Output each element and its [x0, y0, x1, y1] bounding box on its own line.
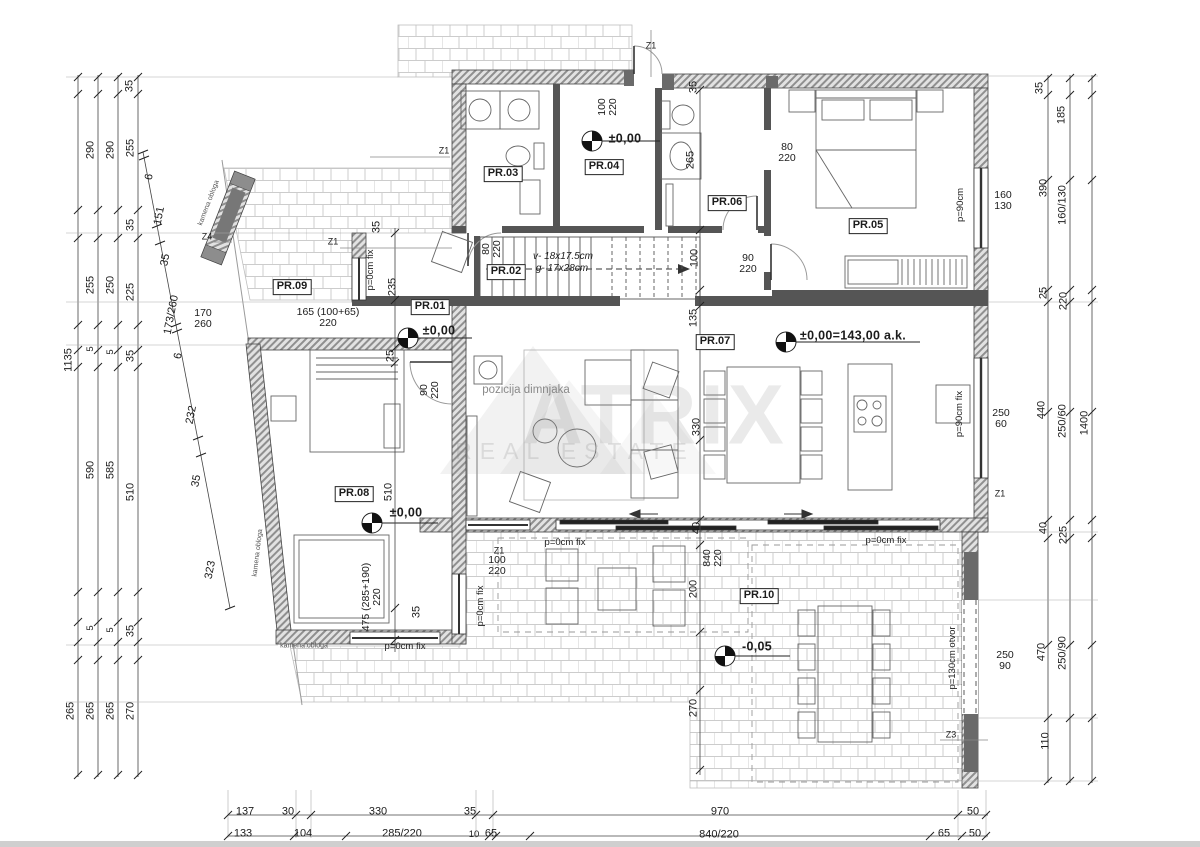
stairs-riser-note: v- 18x17.5cm [533, 252, 593, 262]
stone-cladding-note-2: kamena obloga [251, 529, 264, 577]
dim-left-590: 590 [85, 461, 96, 479]
dim-bottom-65b: 65 [938, 828, 950, 839]
dim-interior-40: 40 [691, 522, 702, 534]
dim-bottom-10: 10 [469, 830, 480, 840]
dim-stone-opening: 170 260 [194, 308, 212, 330]
window-note-west: p=0cm fix [366, 250, 376, 291]
elevation-pr04: ±0,00 [609, 133, 642, 146]
dim-left-35c: 35 [125, 350, 136, 362]
room-label-pr03: PR.03 [484, 166, 523, 182]
dim-diag-6a: 6 [144, 173, 156, 181]
dim-left-5b: 5 [86, 625, 96, 630]
dim-right-250-90: 250/90 [1057, 636, 1068, 670]
section-mark-z1-south: Z1 [494, 546, 505, 555]
dim-interior-35a: 35 [371, 221, 382, 233]
dim-bottom-35: 35 [464, 806, 476, 817]
dim-interior-35top: 35 [688, 81, 699, 93]
dim-terrace-window: 250 90 [996, 650, 1014, 672]
dim-right-110: 110 [1040, 732, 1051, 750]
elevation-pr07: ±0,00=143,00 a.k. [800, 330, 906, 343]
dim-interior-135: 135 [688, 309, 699, 327]
window-note-south-1: p=0cm fix [545, 538, 586, 548]
dim-diag-6b: 6 [173, 352, 185, 360]
dim-left-510: 510 [125, 483, 136, 501]
room-label-pr05: PR.05 [849, 218, 888, 234]
dim-diag-35a: 35 [159, 253, 173, 267]
dim-right-440: 440 [1036, 401, 1047, 419]
dim-left-5a: 5 [86, 346, 96, 351]
room-label-pr02: PR.02 [487, 264, 526, 280]
elevation-pr01: ±0,00 [423, 325, 456, 338]
dim-bottom-840-220: 840/220 [699, 829, 739, 840]
dim-interior-510: 510 [383, 483, 394, 501]
dim-right-390: 390 [1038, 179, 1049, 197]
stone-cladding-note-1: kamena obloga [197, 179, 221, 226]
dim-diag-323: 323 [204, 560, 219, 580]
dim-pr05-door: 80 220 [778, 142, 796, 164]
dim-interior-100: 100 [689, 249, 700, 267]
dim-right-470: 470 [1036, 643, 1047, 661]
room-label-pr07: PR.07 [696, 334, 735, 350]
elevation-pr08: ±0,00 [390, 507, 423, 520]
elevation-pr10: -0,05 [742, 641, 772, 654]
dim-right-225: 225 [1058, 526, 1069, 544]
floorplan-canvas: PR.01PR.02PR.03PR.04PR.05PR.06PR.07PR.08… [0, 0, 1200, 847]
section-mark-z1-pr03: Z1 [439, 146, 450, 155]
section-mark-z1-west: Z1 [328, 237, 339, 246]
window-note-south-2: p=0cm fix [866, 536, 907, 546]
dim-right-220: 220 [1058, 292, 1069, 310]
dim-left-250: 250 [105, 276, 116, 294]
dim-diag-35b: 35 [190, 474, 204, 488]
label-layer: PR.01PR.02PR.03PR.04PR.05PR.06PR.07PR.08… [0, 0, 1200, 847]
dim-left-265b: 265 [85, 702, 96, 720]
dim-pr05-window: 160 130 [994, 190, 1012, 212]
dim-left-225: 225 [125, 283, 136, 301]
dim-diag-232: 232 [185, 405, 200, 425]
dim-bottom-970: 970 [711, 806, 729, 817]
dim-right-160-130: 160/130 [1057, 185, 1068, 225]
window-note-pr05: p=90cm [956, 188, 966, 222]
dim-bottom-50b: 50 [969, 828, 981, 839]
dim-bottom-50a: 50 [967, 806, 979, 817]
section-mark-z1-east: Z1 [995, 489, 1006, 498]
dim-bottom-133: 133 [234, 828, 252, 839]
dim-left-290b: 290 [105, 141, 116, 159]
window-note-pr08-south: p=0cm fix [385, 642, 426, 652]
room-label-pr08: PR.08 [335, 486, 374, 502]
dim-left-5c: 5 [106, 349, 116, 354]
dim-bottom-30: 30 [282, 806, 294, 817]
dim-pr08-door: 90 220 [419, 381, 441, 399]
dim-left-35b: 35 [125, 219, 136, 231]
dim-interior-265: 265 [685, 151, 696, 169]
bottom-strip [0, 841, 1200, 847]
dim-left-265c: 265 [105, 702, 116, 720]
dim-right-35: 35 [1034, 82, 1045, 94]
dim-right-250-60: 250/60 [1057, 404, 1068, 438]
dim-left-35a: 35 [124, 80, 135, 92]
dim-right-25: 25 [1038, 287, 1049, 299]
dim-diag-173-260: 173/260 [163, 294, 182, 335]
dim-diag-151: 151 [153, 206, 168, 226]
window-note-pr07: p=90cm fix [955, 391, 965, 437]
dim-interior-200: 200 [688, 580, 699, 598]
dim-entry-door: 100 220 [597, 98, 619, 116]
room-label-pr01: PR.01 [411, 299, 450, 315]
dim-left-5d: 5 [106, 627, 116, 632]
dim-left-265a: 265 [65, 702, 76, 720]
dim-pr09-opening: 165 (100+65) 220 [297, 307, 360, 329]
dim-left-1135: 1135 [63, 348, 74, 372]
dim-sliding-opening: 840 220 [702, 549, 724, 567]
opening-note-terrace: p=130cm otvor [948, 626, 958, 689]
dim-pr08-window: 475 (285+190) 220 [361, 563, 383, 632]
dim-bottom-65a: 65 [485, 828, 497, 839]
window-note-pr08-east: p=0cm fix [476, 586, 486, 627]
room-label-pr10: PR.10 [740, 588, 779, 604]
dim-interior-35b: 35 [411, 606, 422, 618]
dim-pr07-window: 250 60 [992, 408, 1010, 430]
dim-pr10-window: 100 220 [488, 555, 506, 577]
dim-left-255b: 255 [125, 139, 136, 157]
room-label-pr06: PR.06 [708, 195, 747, 211]
dim-interior-25: 25 [385, 350, 396, 362]
section-mark-z4: Z4 [202, 232, 213, 241]
dim-corridor-door: 90 220 [739, 253, 757, 275]
dim-bottom-104: 104 [294, 828, 312, 839]
dim-bottom-330: 330 [369, 806, 387, 817]
dim-right-1400: 1400 [1079, 411, 1090, 435]
dim-left-585: 585 [105, 461, 116, 479]
dim-interior-270: 270 [688, 699, 699, 717]
dim-left-255a: 255 [85, 276, 96, 294]
dim-bottom-137: 137 [236, 806, 254, 817]
dim-pr02-door: 80 220 [481, 240, 503, 258]
watermark-subtitle: REAL ESTATE [455, 440, 695, 464]
dim-bottom-285-220: 285/220 [382, 828, 422, 839]
section-mark-z3: Z3 [946, 730, 957, 739]
stone-cladding-note-3: kamena obloga [280, 642, 328, 649]
room-label-pr09: PR.09 [273, 279, 312, 295]
dim-right-40: 40 [1038, 522, 1049, 534]
room-label-pr04: PR.04 [585, 159, 624, 175]
dim-left-35d: 35 [125, 625, 136, 637]
stairs-going-note: g- 17x28cm [536, 264, 588, 274]
dim-left-270: 270 [125, 702, 136, 720]
dim-interior-235: 235 [387, 278, 398, 296]
section-mark-z1-top: Z1 [646, 41, 657, 50]
dim-left-290a: 290 [85, 141, 96, 159]
dim-right-185: 185 [1056, 106, 1067, 124]
